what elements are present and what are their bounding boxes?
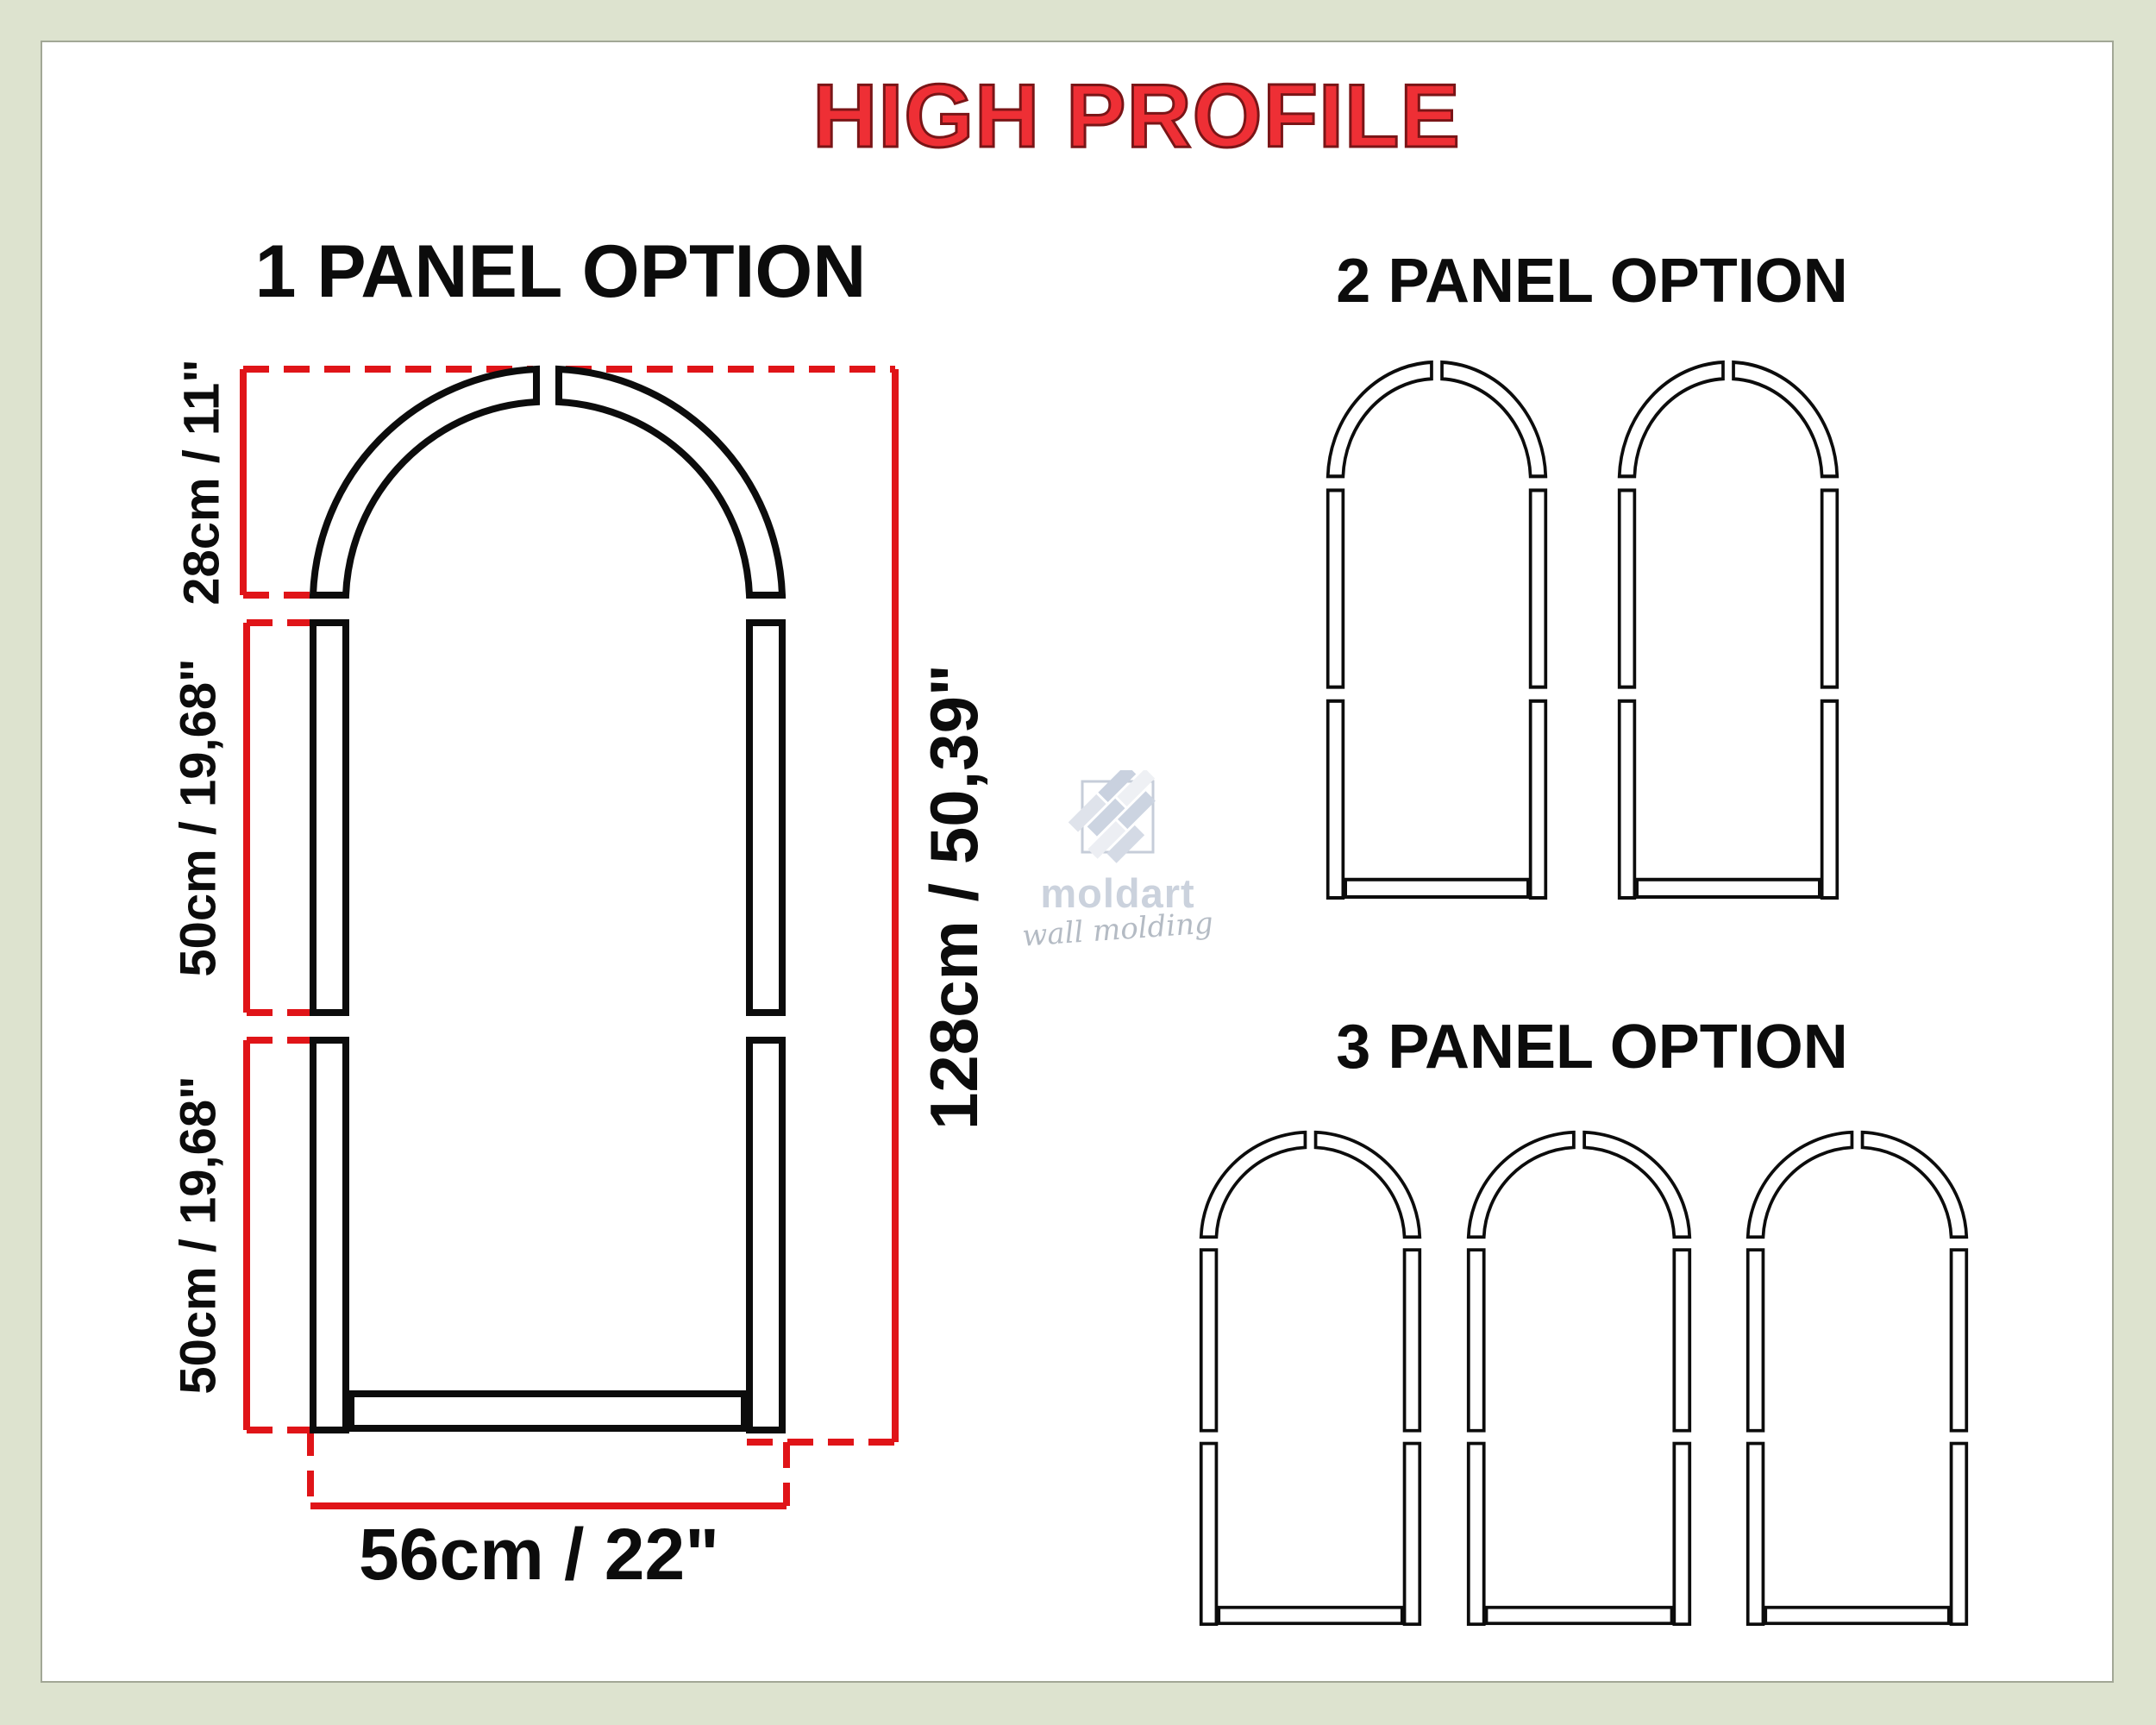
total-height-label: 128cm / 50,39" bbox=[916, 664, 992, 1130]
lower-side-label: 50cm / 19,68" bbox=[171, 1076, 227, 1394]
two-panel-arch-1 bbox=[1328, 362, 1546, 898]
diagram-canvas: 28cm / 11" 50cm / 19,68" 50cm / 19,68" 1… bbox=[0, 0, 2156, 1725]
upper-side-label: 50cm / 19,68" bbox=[171, 658, 227, 976]
three-panel-arch-2 bbox=[1469, 1132, 1689, 1624]
width-label: 56cm / 22" bbox=[359, 1514, 719, 1595]
one-panel-arch-diagram bbox=[313, 369, 782, 1430]
three-panel-arch-1 bbox=[1201, 1132, 1420, 1624]
arch-height-label: 28cm / 11" bbox=[174, 359, 230, 605]
three-panel-arch-3 bbox=[1748, 1132, 1967, 1624]
two-panel-arch-2 bbox=[1620, 362, 1838, 898]
